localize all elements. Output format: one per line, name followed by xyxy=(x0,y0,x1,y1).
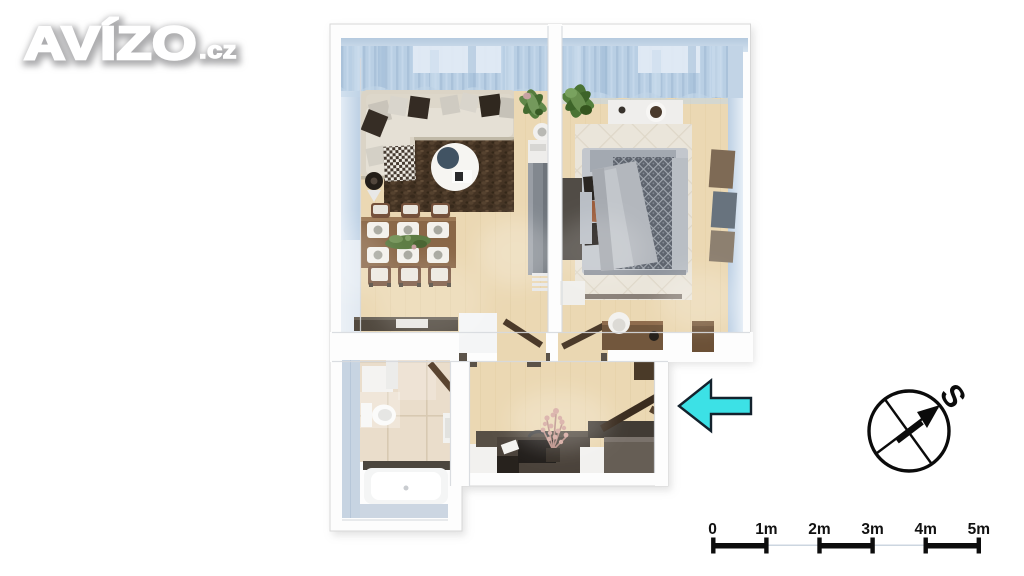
svg-text:.cz: .cz xyxy=(199,38,237,64)
svg-text:4m: 4m xyxy=(914,521,936,538)
svg-text:AVÍZO: AVÍZO xyxy=(24,17,197,68)
svg-text:2m: 2m xyxy=(808,521,830,538)
svg-text:0: 0 xyxy=(708,521,717,538)
svg-text:1m: 1m xyxy=(755,521,777,538)
svg-text:5m: 5m xyxy=(968,521,990,538)
svg-text:3m: 3m xyxy=(861,521,883,538)
